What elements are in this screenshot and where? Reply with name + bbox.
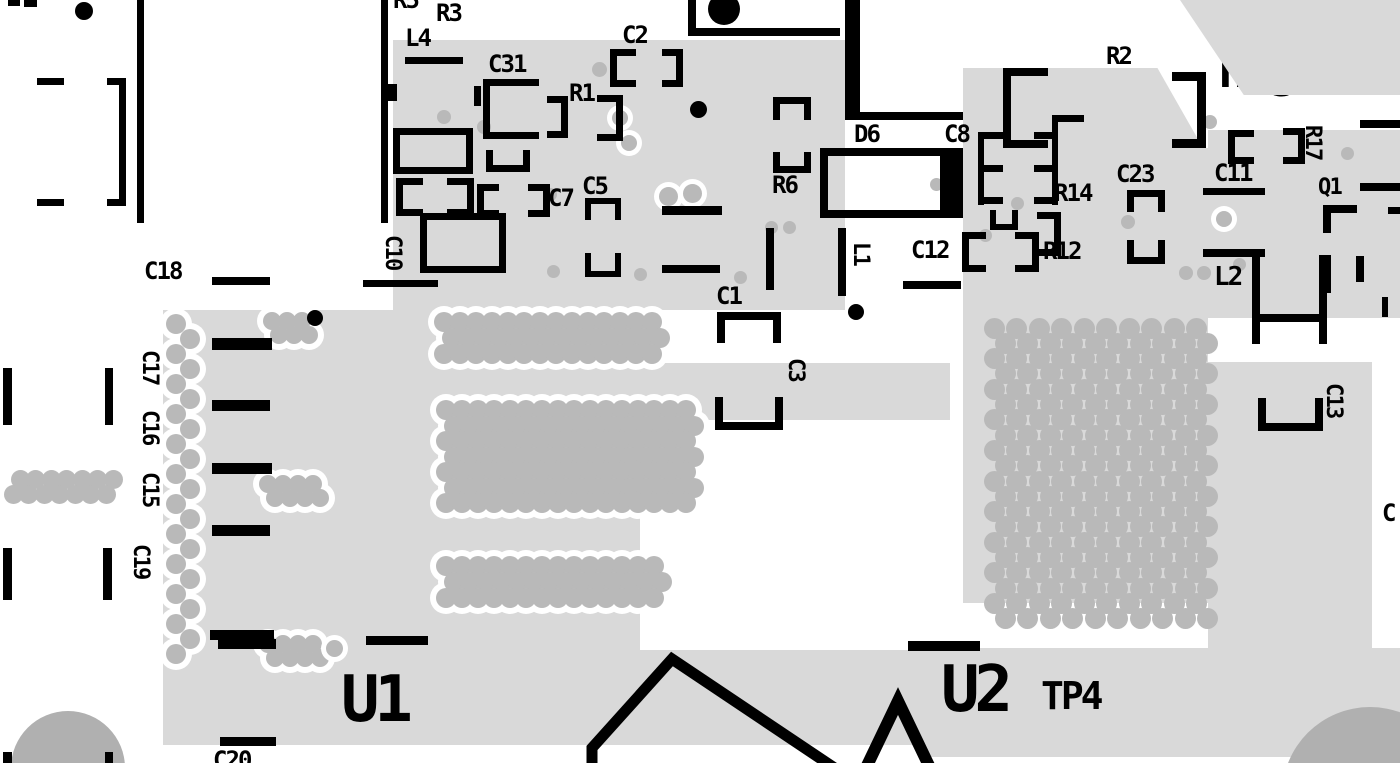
component-outline-triangles <box>0 0 1400 763</box>
small-chevron-outline <box>864 701 932 763</box>
big-corner-outline <box>592 659 845 763</box>
pcb-silkscreen-view: Danger High Vo R5R3L4C31C2R1C7C5C10R6D6C… <box>0 0 1400 763</box>
